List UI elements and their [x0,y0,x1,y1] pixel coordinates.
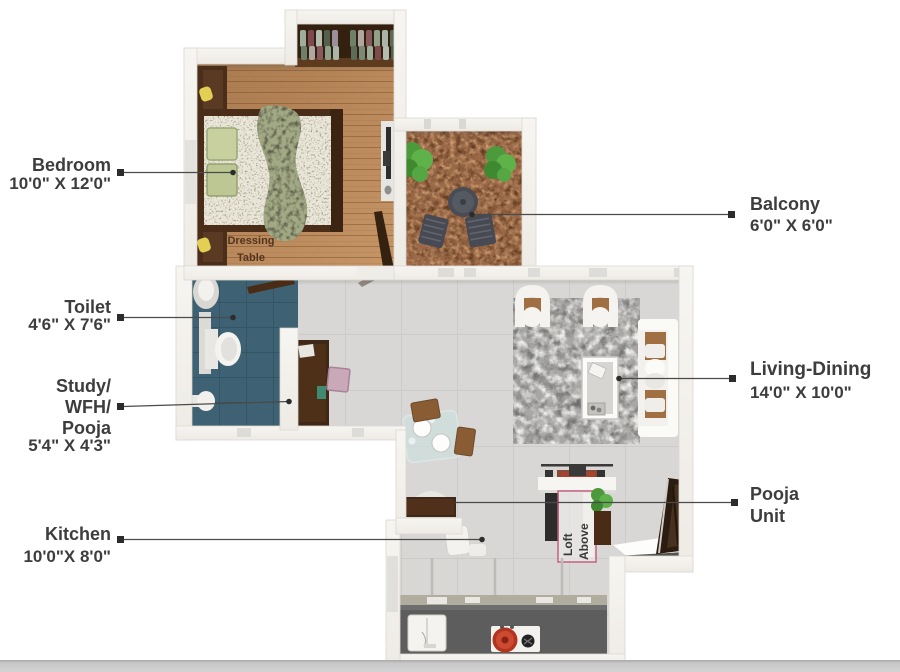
svg-text:6'0" X 6'0": 6'0" X 6'0" [750,216,833,235]
svg-text:Living-Dining: Living-Dining [750,359,871,380]
svg-text:Bedroom: Bedroom [32,155,111,175]
svg-text:5'4" X 4'3": 5'4" X 4'3" [28,436,111,455]
svg-text:WFH/: WFH/ [65,397,111,417]
svg-text:Loft: Loft [561,533,575,556]
svg-text:Balcony: Balcony [750,194,820,214]
svg-text:10'0"X 8'0": 10'0"X 8'0" [23,547,111,566]
svg-text:Unit: Unit [750,506,785,526]
svg-text:14'0" X 10'0": 14'0" X 10'0" [750,383,852,402]
svg-text:4'6" X 7'6": 4'6" X 7'6" [28,315,111,334]
svg-text:Table: Table [237,252,265,264]
svg-text:Above: Above [577,523,591,560]
svg-text:Pooja: Pooja [750,484,800,504]
svg-text:Pooja: Pooja [62,418,112,438]
svg-text:10'0" X 12'0": 10'0" X 12'0" [9,174,111,193]
svg-text:Study/: Study/ [56,376,111,396]
svg-text:Kitchen: Kitchen [45,524,111,544]
svg-text:Dressing: Dressing [227,235,274,247]
svg-text:Toilet: Toilet [64,297,111,317]
